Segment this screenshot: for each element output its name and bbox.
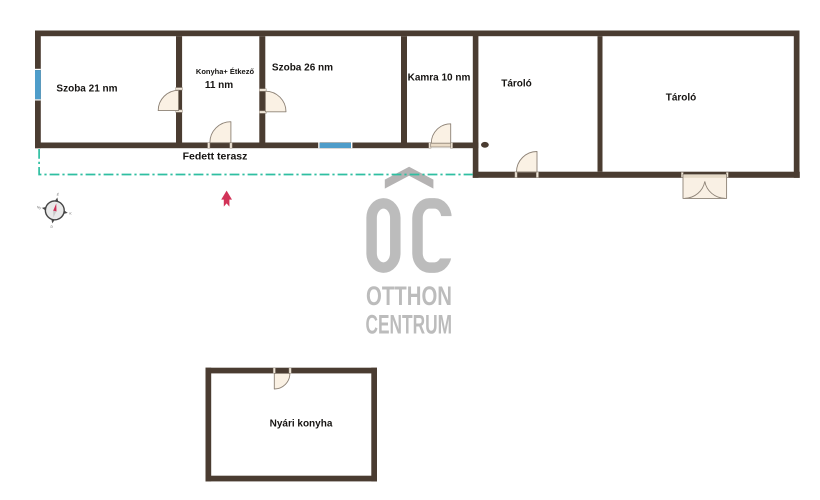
svg-text:CENTRUM: CENTRUM (366, 310, 453, 340)
svg-text:OTTHON: OTTHON (366, 281, 452, 311)
svg-text:11 nm: 11 nm (205, 80, 233, 91)
svg-text:Nyári konyha: Nyári konyha (270, 419, 333, 430)
svg-text:Ny: Ny (37, 205, 42, 210)
svg-text:Konyha+ Étkező: Konyha+ Étkező (196, 67, 255, 76)
svg-text:D: D (50, 225, 54, 229)
svg-text:Tároló: Tároló (501, 79, 532, 90)
svg-text:K: K (69, 211, 73, 215)
svg-text:Fedett terasz: Fedett terasz (183, 151, 248, 163)
svg-text:É: É (56, 192, 60, 197)
svg-text:Tároló: Tároló (666, 93, 697, 104)
svg-text:Szoba 21 nm: Szoba 21 nm (56, 84, 117, 95)
svg-text:Kamra 10 nm: Kamra 10 nm (408, 73, 471, 84)
svg-text:Szoba 26 nm: Szoba 26 nm (272, 63, 333, 74)
